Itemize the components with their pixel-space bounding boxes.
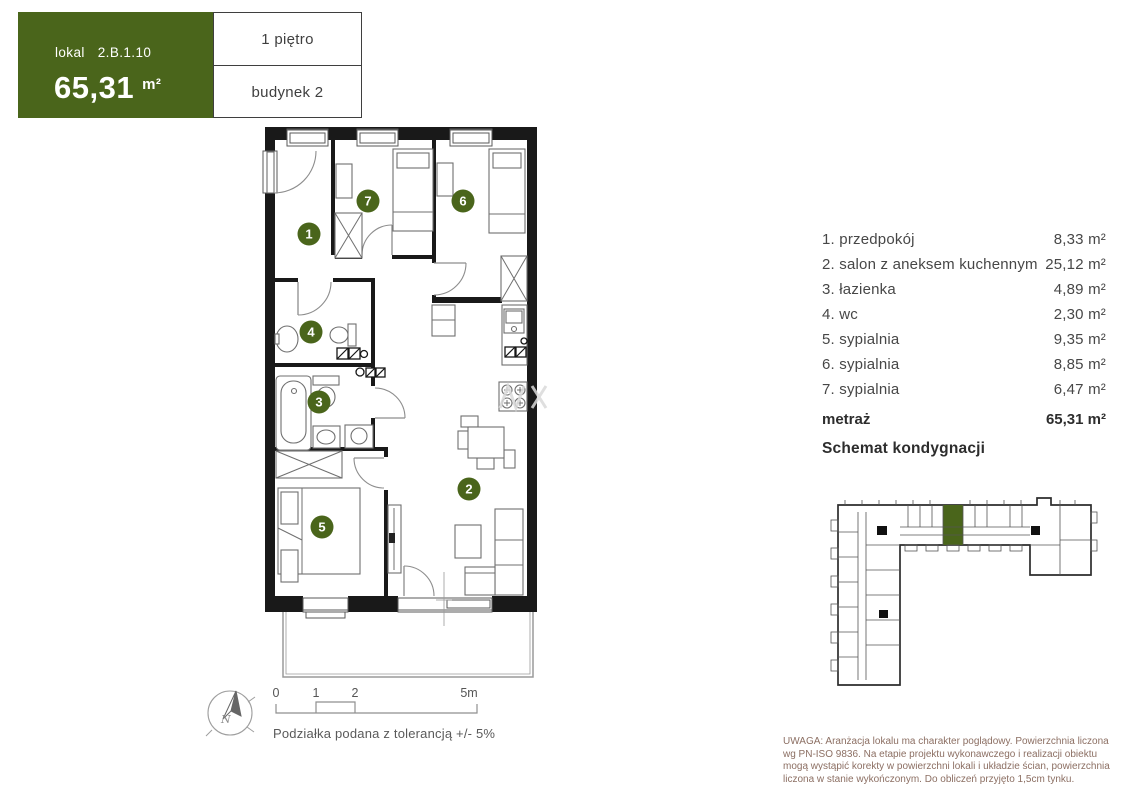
bedroom6-furniture [437,149,527,301]
unit-area-line: 65,31m² [54,70,161,106]
room-row-area: 4,89 m² [1054,281,1106,298]
room-row: 4. wc 2,30 m² [822,306,1106,331]
room-row-label: 7. sypialnia [822,381,899,398]
highlighted-unit [943,505,963,545]
staircase-core-1 [877,526,887,535]
building-outline [838,498,1091,685]
room-row-label: 4. wc [822,306,858,323]
room-row: 2. salon z aneksem kuchennym 25,12 m² [822,256,1106,281]
room-marker-6: 6 [452,190,475,213]
compass-north-label: N [220,713,231,726]
room-row-label: 6. sypialnia [822,356,899,373]
bedroom7-furniture [335,149,433,258]
svg-text:6: 6 [459,194,466,209]
scale-bar-line [276,702,477,713]
svg-text:3: 3 [315,395,322,410]
room-row: 3. łazienka 4,89 m² [822,281,1106,306]
scale-tick-1: 1 [313,686,320,700]
svg-text:2: 2 [465,482,472,497]
room-row-area: 9,35 m² [1054,331,1106,348]
svg-text:5: 5 [318,520,325,535]
svg-text:4: 4 [307,325,315,340]
apartment-floor-plan: 1 7 6 4 3 5 2 [255,115,555,690]
unit-area-unit: m² [142,76,161,93]
room-rows: 1. przedpokój 8,33 m² 2. salon z aneksem… [822,231,1106,406]
room-legend: 1. przedpokój 8,33 m² 2. salon z aneksem… [822,231,1106,458]
room-row-label: 5. sypialnia [822,331,899,348]
room-row-label: 2. salon z aneksem kuchennym [822,256,1038,273]
north-compass: N [200,686,262,742]
room-marker-2: 2 [458,478,481,501]
storey-schematic [825,490,1117,700]
total-row: metraż 65,31 m² [822,411,1106,437]
entrance-door-leaf [267,152,274,193]
room-row: 1. przedpokój 8,33 m² [822,231,1106,256]
bathroom-appliance-icons [356,368,385,377]
unit-area-value: 65,31 [54,70,134,105]
staircase-core-2 [1031,526,1040,535]
room-row-area: 25,12 m² [1045,256,1106,273]
lokal-value: 2.B.1.10 [98,45,152,60]
svg-text:1: 1 [305,227,312,242]
room-row-area: 6,47 m² [1054,381,1106,398]
bathroom-furniture [276,376,373,450]
room-marker-1: 1 [298,223,321,246]
room-row-area: 8,33 m² [1054,231,1106,248]
wc-washer-icons [337,348,368,359]
floor-plan-page: lokal2.B.1.10 65,31m² 1 piętro budynek 2 [0,0,1146,800]
room-row: 5. sypialnia 9,35 m² [822,331,1106,356]
floor-building-box: 1 piętro budynek 2 [213,12,362,118]
scale-bar: 0 1 2 5m [260,680,490,725]
scale-tick-5m: 5m [460,686,477,700]
room-marker-7: 7 [357,190,380,213]
svg-text:7: 7 [364,194,371,209]
room-row-area: 8,85 m² [1054,356,1106,373]
room-row-label: 3. łazienka [822,281,896,298]
lokal-label: lokal [55,45,85,60]
bedroom5-furniture [276,451,401,582]
room-row: 6. sypialnia 8,85 m² [822,356,1106,381]
total-area: 65,31 m² [1046,411,1106,428]
balcony [283,612,533,677]
scale-tick-2: 2 [352,686,359,700]
room-row-label: 1. przedpokój [822,231,915,248]
unit-badge: lokal2.B.1.10 65,31m² [18,12,213,118]
disclaimer-text: UWAGA: Aranżacja lokalu ma charakter pog… [783,736,1116,786]
unit-id-line: lokal2.B.1.10 [55,45,151,60]
scale-tolerance-note: Podziałka podana z tolerancją +/- 5% [273,726,495,741]
building-label: budynek 2 [214,66,361,118]
room-row: 7. sypialnia 6,47 m² [822,381,1106,406]
floor-label: 1 piętro [214,13,361,66]
total-label: metraż [822,411,870,428]
room-marker-3: 3 [308,391,331,414]
scale-tick-0: 0 [273,686,280,700]
room-marker-4: 4 [300,321,323,344]
staircase-core-3 [879,610,888,618]
room-marker-5: 5 [311,516,334,539]
room-row-area: 2,30 m² [1054,306,1106,323]
schematic-title: Schemat kondygnacji [822,440,1106,458]
